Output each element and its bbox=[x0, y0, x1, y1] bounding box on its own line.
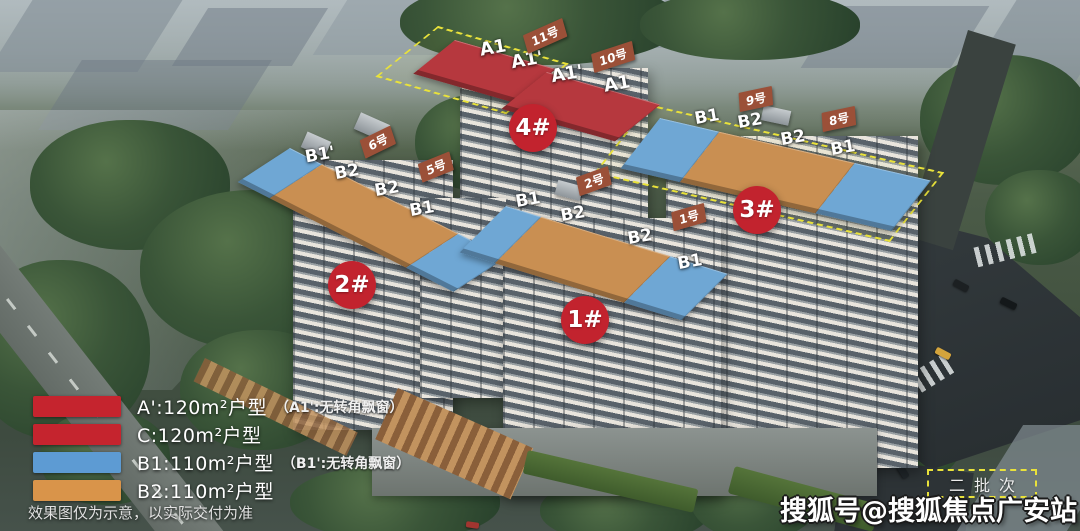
unit-label-b1: B1 bbox=[829, 136, 857, 160]
legend-row: B1:110m²户型 （B1':无转角飘窗） bbox=[33, 452, 410, 473]
unit-label-b2: B2 bbox=[736, 109, 764, 133]
legend-row: A':120m²户型 （A1':无转角飘窗） bbox=[33, 396, 410, 417]
unit-label-b1: B1 bbox=[408, 197, 436, 221]
unit-label-b2: B2 bbox=[559, 202, 587, 226]
legend-note: （B1':无转角飘窗） bbox=[282, 453, 410, 473]
building-marker-1: 1# bbox=[561, 296, 609, 344]
legend-row: B2:110m²户型 bbox=[33, 480, 410, 501]
legend-swatch-blue bbox=[33, 452, 121, 473]
disclaimer-text: 效果图仅为示意，以实际交付为准 bbox=[28, 502, 253, 523]
legend-row: C:120m²户型 bbox=[33, 424, 410, 445]
legend-label: A':120m²户型 bbox=[137, 393, 267, 420]
building-marker-2: 2# bbox=[328, 261, 376, 309]
unit-label-b2: B2 bbox=[779, 126, 807, 150]
unit-label-b1: B1 bbox=[514, 188, 542, 212]
unit-label-b2: B2 bbox=[626, 225, 654, 249]
legend-label: B1:110m²户型 bbox=[137, 449, 274, 476]
legend-label: B2:110m²户型 bbox=[137, 477, 274, 504]
legend-label: C:120m²户型 bbox=[137, 421, 262, 448]
aerial-render-scene: A1 A1' A1' A1 B1' B2 B2 B1 B1 B2 B2 B1 B… bbox=[0, 0, 1080, 531]
unit-label-b1: B1 bbox=[693, 105, 721, 129]
unit-label-b2: B2 bbox=[333, 160, 361, 184]
building-marker-4: 4# bbox=[509, 104, 557, 152]
unit-type-legend: A':120m²户型 （A1':无转角飘窗） C:120m²户型 B1:110m… bbox=[33, 396, 410, 501]
legend-swatch-red bbox=[33, 396, 121, 417]
legend-note: （A1':无转角飘窗） bbox=[275, 397, 403, 417]
unit-label-b1: B1 bbox=[676, 250, 704, 274]
watermark-text: 搜狐号@搜狐焦点广安站 bbox=[780, 489, 1077, 528]
legend-swatch-red bbox=[33, 424, 121, 445]
unit-label-b2: B2 bbox=[373, 177, 401, 201]
legend-swatch-orange bbox=[33, 480, 121, 501]
building-marker-3: 3# bbox=[733, 186, 781, 234]
